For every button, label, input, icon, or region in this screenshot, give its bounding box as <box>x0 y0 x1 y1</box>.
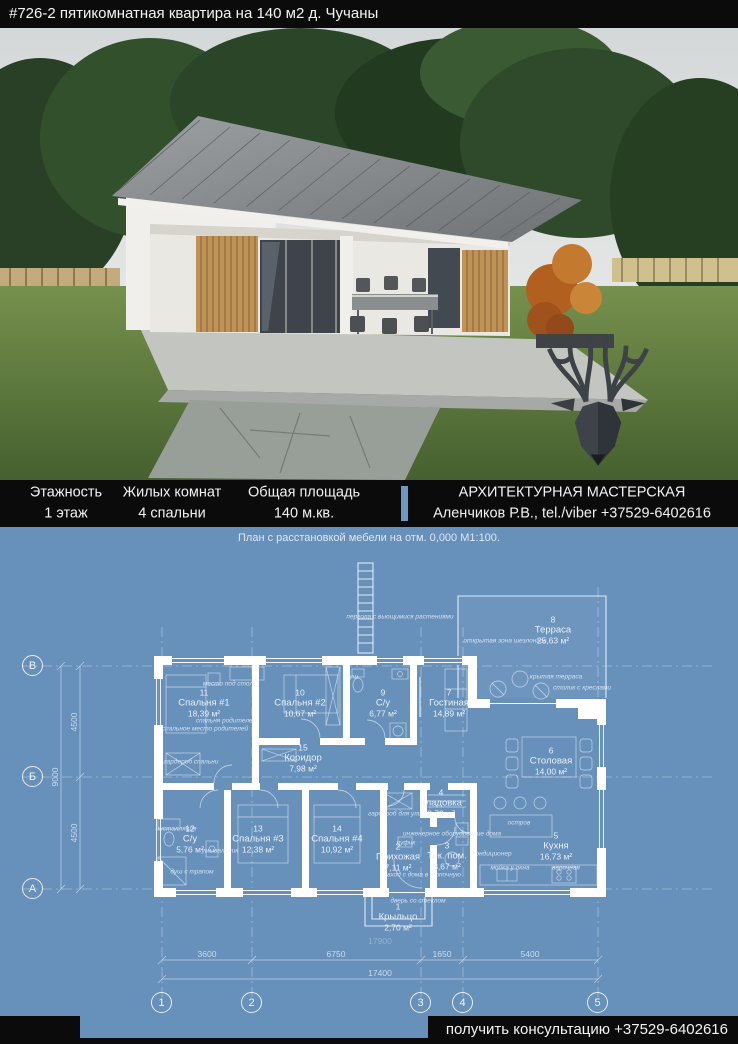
dimension-label: 17900 <box>368 936 392 946</box>
stat-label: Этажность <box>30 482 102 504</box>
grid-bubble: 2 <box>241 992 262 1013</box>
room-label: 6Столовая14,00 м² <box>530 745 572 776</box>
plan-annotation: мойка у окна <box>490 865 529 872</box>
plan-annotation: гардероб спальни <box>164 759 219 766</box>
floor-plan: План с расстановкой мебели на отм. 0,000… <box>0 527 738 1016</box>
plan-annotation: остров <box>508 820 531 827</box>
plan-annotation: инсталляция <box>156 826 197 833</box>
studio-contact: Аленчиков Р.В., tel./viber +37529-640261… <box>433 504 711 526</box>
dimension-label: 4500 <box>69 824 79 843</box>
house-illustration <box>0 28 738 480</box>
dimension-label: 6750 <box>327 949 346 959</box>
room-label: 3Тек. пом.3,67 м² <box>427 840 467 871</box>
plan-annotation: кондиционер <box>472 851 511 858</box>
stat-floors: Этажность 1 этаж <box>30 482 102 526</box>
plan-annotation: гардероб для улицы <box>368 811 430 818</box>
room-label: 9С/у6,77 м² <box>369 687 397 718</box>
plan-labels-overlay: 11Спальня #118,39 м²10Спальня #210,67 м²… <box>0 527 738 1016</box>
plan-annotation: пергола с вьющимися растениями <box>346 614 453 621</box>
plan-annotation: пуфик <box>397 840 416 847</box>
stat-value: 4 спальни <box>123 504 222 526</box>
house-photo <box>0 28 738 480</box>
dimension-label: 4500 <box>69 713 79 732</box>
poster: #726-2 пятикомнатная квартира на 140 м2 … <box>0 0 738 1044</box>
grid-bubble: 4 <box>452 992 473 1013</box>
grid-bubble: А <box>22 878 43 899</box>
stat-label: Общая площадь <box>248 482 360 504</box>
dimension-label: 3600 <box>198 949 217 959</box>
grid-bubble: 3 <box>410 992 431 1013</box>
plan-annotation: открытая зона шезлонгов <box>463 638 546 645</box>
outdoor-dining-set <box>350 276 438 334</box>
right-fence <box>612 258 738 282</box>
grid-bubble: Б <box>22 766 43 787</box>
stat-rooms: Жилых комнат 4 спальни <box>123 482 222 526</box>
vertical-divider <box>401 486 408 521</box>
stat-label: Жилых комнат <box>123 482 222 504</box>
footer-cta: получить консультацию +37529-6402616 <box>446 1016 728 1044</box>
room-label: 5Кухня16,73 м² <box>540 830 572 861</box>
room-label: 10Спальня #210,67 м² <box>274 687 325 718</box>
dimension-label: 5400 <box>521 949 540 959</box>
footer-blue-notch <box>80 1016 428 1038</box>
info-bar: Этажность 1 этаж Жилых комнат 4 спальни … <box>0 480 738 527</box>
plan-annotation: дверь со стеклом <box>390 898 445 905</box>
grid-bubble: 1 <box>151 992 172 1013</box>
plan-annotation: варочная <box>552 865 580 872</box>
page-title: #726-2 пятикомнатная квартира на 140 м2 … <box>9 5 378 22</box>
plan-annotation: спальное место родителей <box>162 726 248 733</box>
plan-annotation: столик с креслами <box>553 685 611 692</box>
plan-annotation: спальня родителей <box>196 718 256 725</box>
plan-annotation: крытая терраса <box>530 674 582 681</box>
plan-annotation: инженерное оборудование дома <box>403 831 501 838</box>
studio-name: АРХИТЕКТУРНАЯ МАСТЕРСКАЯ <box>433 482 711 504</box>
room-label: 14Спальня #410,92 м² <box>311 823 362 854</box>
plan-annotation: место под стол <box>203 681 253 688</box>
plan-annotation: вход с дома в топочную <box>387 872 461 879</box>
room-label: 15Коридор7,98 м² <box>284 742 322 773</box>
room-label: 11Спальня #118,39 м² <box>178 687 229 718</box>
stat-value: 140 м.кв. <box>248 504 360 526</box>
room-label: 7Гостиная14,89 м² <box>429 687 469 718</box>
plan-annotation: душ с трапом <box>170 869 213 876</box>
stat-area: Общая площадь 140 м.кв. <box>248 482 360 526</box>
plan-annotation: душ <box>346 674 358 681</box>
dimension-label: 1650 <box>433 949 452 959</box>
plan-annotation: умывальник <box>202 848 239 855</box>
dimension-label: 17400 <box>368 968 392 978</box>
grid-bubble: В <box>22 655 43 676</box>
footer-bar: получить консультацию +37529-6402616 <box>0 1016 738 1044</box>
dimension-label: 9000 <box>50 768 60 787</box>
stat-value: 1 этаж <box>30 504 102 526</box>
room-label: 13Спальня #312,38 м² <box>232 823 283 854</box>
room-label: 1Крыльцо2,70 м² <box>379 901 418 932</box>
title-bar: #726-2 пятикомнатная квартира на 140 м2 … <box>0 0 738 28</box>
grid-bubble: 5 <box>587 992 608 1013</box>
studio-block: АРХИТЕКТУРНАЯ МАСТЕРСКАЯ Аленчиков Р.В.,… <box>433 482 711 526</box>
